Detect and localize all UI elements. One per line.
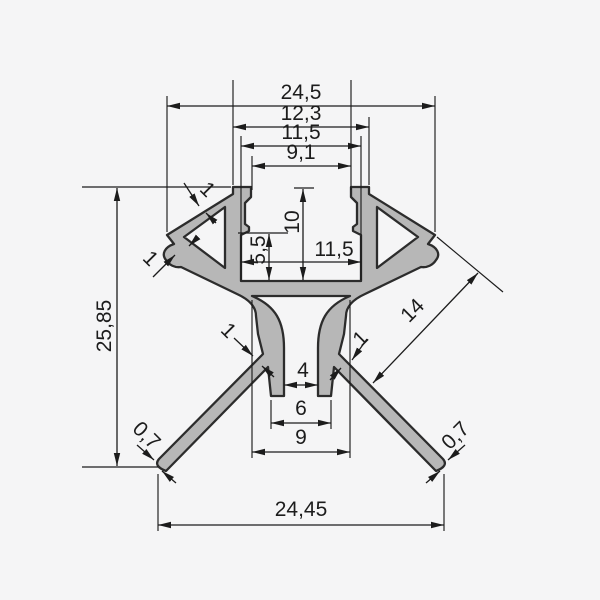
leader-tip-right-counter	[426, 471, 440, 483]
label-top-overall: 24,5	[281, 81, 322, 104]
leader-leg-left	[234, 338, 253, 356]
label-slot-mid: 6	[295, 397, 307, 420]
label-leg-left: 1	[216, 318, 241, 343]
leader-tip-left-counter	[162, 471, 176, 483]
ext-leg-length	[437, 237, 503, 292]
dimension-labels: 24,5 12,3 11,5 9,1 10 5,5 11,5 25,85 1 1…	[93, 81, 474, 521]
label-wing-wall-side: 1	[138, 246, 163, 271]
label-slot-outer: 9	[295, 426, 307, 449]
label-depth: 10	[281, 210, 304, 233]
label-tip-right: 0,7	[437, 417, 474, 454]
label-slot-top: 4	[297, 359, 309, 382]
label-leg-length: 14	[396, 294, 429, 327]
label-mid-inner: 11,5	[314, 238, 353, 261]
label-wing-wall-top: 1	[195, 177, 220, 202]
label-top-opening: 9,1	[286, 141, 315, 164]
profile-dimension-drawing: 24,5 12,3 11,5 9,1 10 5,5 11,5 25,85 1 1…	[0, 0, 600, 600]
label-leg-right: 1	[348, 326, 373, 351]
label-height: 25,85	[93, 300, 116, 353]
dim-leg-length	[373, 273, 478, 383]
label-bottom-overall: 24,45	[275, 498, 328, 521]
label-tip-left: 0,7	[128, 417, 165, 454]
label-step-depth: 5,5	[247, 235, 270, 264]
